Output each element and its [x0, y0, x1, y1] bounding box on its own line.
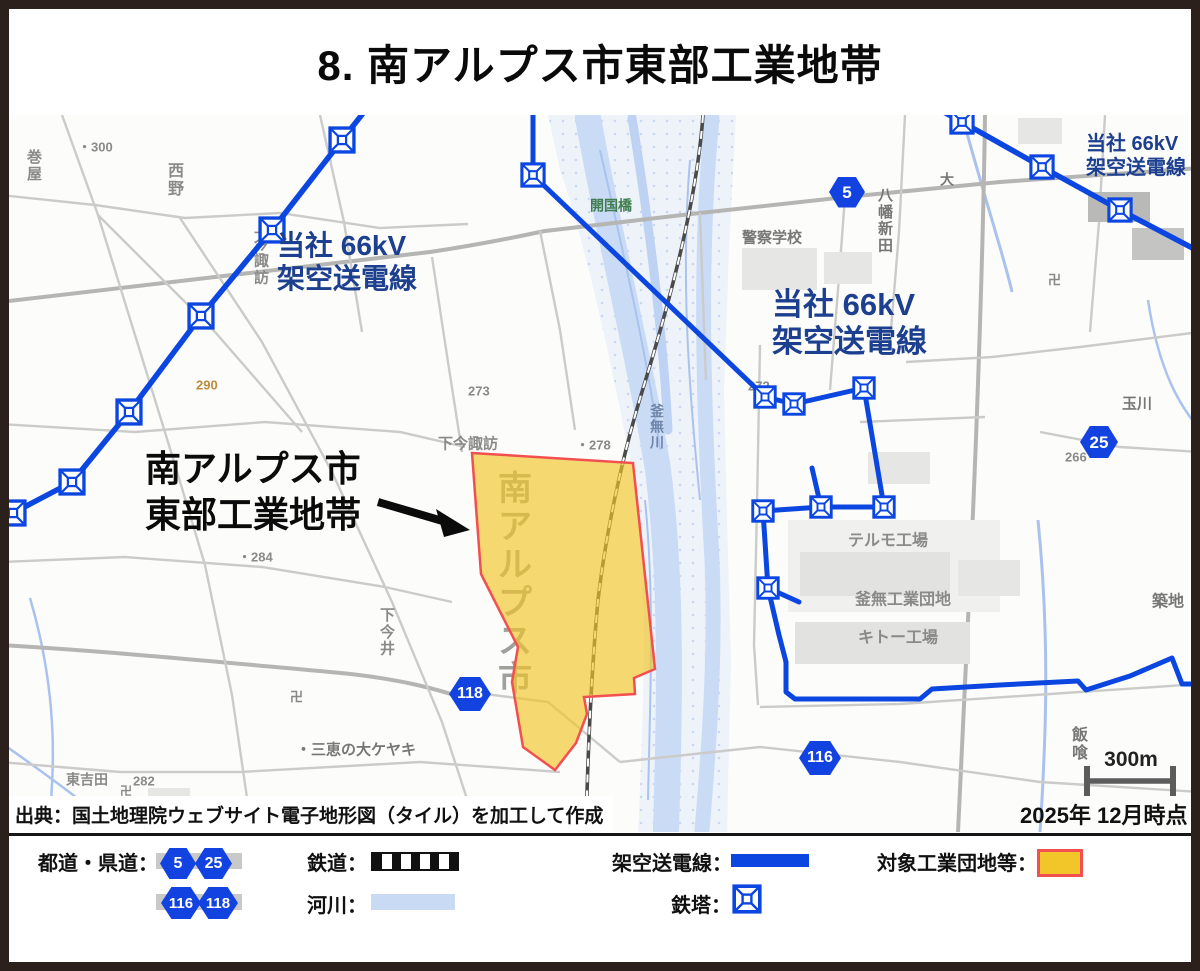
map-base-label: 西野: [168, 162, 184, 198]
slide-page: 巻屋・300西野上今諏訪290273下今諏訪開国橋警察学校八幡新田大272・27…: [0, 0, 1200, 971]
pylon-icon: [758, 578, 778, 598]
map-base-label: 警察学校: [741, 228, 803, 246]
map-base-label: ・278: [576, 438, 611, 453]
pylon-icon: [1109, 199, 1131, 221]
pylon-icon: [260, 218, 284, 242]
map-base-label: 卍: [290, 690, 303, 705]
pylon-icon: [784, 394, 804, 414]
map-base-label: 飯喰: [1071, 725, 1089, 762]
legend: 都道・県道： 5 25 116 118 鉄道： 河川： 架空送電線： 鉄塔： 対…: [9, 833, 1191, 965]
pylon-icon: [753, 501, 773, 521]
legend-roads-label: 都道・県道：: [38, 847, 158, 876]
map-base-label: 開国橋: [590, 197, 633, 213]
legend-badge-118: 118: [198, 887, 238, 919]
map-base-label: ・三恵の大ケヤキ: [296, 740, 416, 758]
map-base-label: 282: [133, 774, 155, 789]
page-title: 8. 南アルプス市東部工業地帯: [317, 32, 882, 93]
map-base-label: 築地: [1151, 591, 1184, 610]
legend-river-swatch: [371, 894, 455, 910]
map-base-label: 大: [940, 171, 954, 187]
legend-railway-label: 鉄道：: [307, 847, 367, 876]
pylon-icon: [1, 501, 25, 525]
legend-pylon-icon: [732, 884, 762, 914]
pylon-icon: [117, 400, 141, 424]
pylon-icon: [1031, 156, 1053, 178]
pylon-icon: [811, 497, 831, 517]
map-base-label: 卍: [1048, 273, 1061, 288]
map-base-label: 東吉田: [66, 771, 108, 787]
map-base-label: 290: [196, 378, 218, 393]
map-base-label: 273: [468, 384, 490, 399]
map-base-label: ・284: [238, 550, 273, 565]
map-base-label: 釜無工業団地: [854, 589, 951, 608]
map-graphics: 巻屋・300西野上今諏訪290273下今諏訪開国橋警察学校八幡新田大272・27…: [0, 110, 1200, 832]
river-channel-east: [702, 118, 713, 830]
map-base-label: 巻屋: [26, 148, 42, 183]
pylon-icon: [330, 128, 354, 152]
source-note-strip: 出典：国土地理院ウェブサイト電子地形図（タイル）を加工して作成: [9, 796, 613, 832]
pylon-icon: [854, 378, 874, 398]
legend-powerline-swatch: [731, 854, 809, 867]
map-base-label: ・300: [78, 140, 113, 155]
legend-industrial-swatch: [1037, 849, 1083, 877]
pylon-icon: [874, 497, 894, 517]
legend-powerline-label: 架空送電線：: [612, 847, 732, 876]
legend-railway-symbol: [371, 852, 459, 871]
title-bar: 8. 南アルプス市東部工業地帯: [9, 9, 1191, 115]
source-note-text: 出典：国土地理院ウェブサイト電子地形図（タイル）を加工して作成: [9, 801, 603, 828]
legend-pylon-label: 鉄塔：: [671, 889, 731, 918]
map-base-label: 下今井: [379, 607, 395, 658]
map-base-label: 釜無川: [649, 403, 665, 450]
legend-river-label: 河川：: [307, 889, 367, 918]
pylon-icon: [755, 387, 775, 407]
pylon-icon: [189, 304, 213, 328]
map-base-label: キトー工場: [858, 628, 938, 646]
map-base-label: 266: [1065, 450, 1087, 465]
pylon-icon: [60, 470, 84, 494]
map-base-label: テルモ工場: [848, 531, 928, 549]
pylon-icon: [522, 164, 544, 186]
legend-industrial-label: 対象工業団地等：: [877, 847, 1037, 876]
map-base-label: 下今諏訪: [438, 434, 498, 452]
map-base-label: 八幡新田: [877, 187, 894, 254]
legend-badge-116: 116: [161, 887, 201, 919]
map-base-label: 玉川: [1122, 395, 1152, 412]
